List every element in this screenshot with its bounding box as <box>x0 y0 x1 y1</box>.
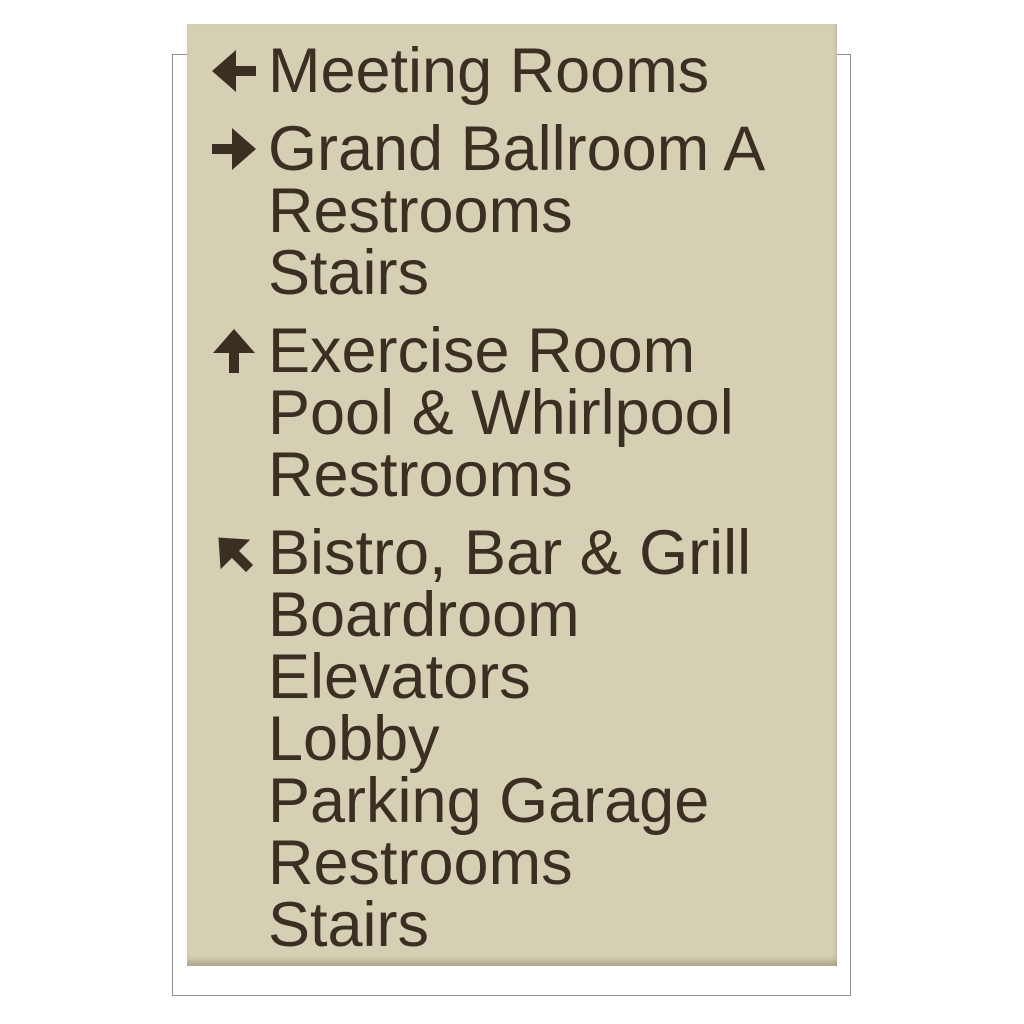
destination-label: Restrooms <box>268 832 823 894</box>
arrow-right-icon <box>210 118 268 180</box>
destination-label: Bistro, Bar & Grill <box>268 522 823 584</box>
destination-label: Boardroom <box>268 584 823 646</box>
arrow-left-icon <box>210 40 268 102</box>
destination-label: Meeting Rooms <box>268 40 823 102</box>
direction-group-up: Exercise RoomPool & WhirlpoolRestrooms <box>210 320 823 506</box>
destination-list: Meeting Rooms <box>268 40 823 102</box>
destination-list: Exercise RoomPool & WhirlpoolRestrooms <box>268 320 823 506</box>
direction-group-right: Grand Ballroom ARestroomsStairs <box>210 118 823 304</box>
direction-group-up-left: Bistro, Bar & GrillBoardroomElevatorsLob… <box>210 522 823 956</box>
arrow-up-icon <box>210 320 268 382</box>
destination-label: Pool & Whirlpool <box>268 382 823 444</box>
destination-label: Restrooms <box>268 444 823 506</box>
destination-list: Grand Ballroom ARestroomsStairs <box>268 118 823 304</box>
wayfinding-sign-image: Meeting RoomsGrand Ballroom ARestroomsSt… <box>0 0 1024 1024</box>
destination-label: Restrooms <box>268 180 823 242</box>
destination-label: Lobby <box>268 708 823 770</box>
destination-list: Bistro, Bar & GrillBoardroomElevatorsLob… <box>268 522 823 956</box>
destination-label: Parking Garage <box>268 770 823 832</box>
direction-group-left: Meeting Rooms <box>210 40 823 102</box>
destination-label: Grand Ballroom A <box>268 118 823 180</box>
arrow-up-left-icon <box>210 522 268 584</box>
sign-panel: Meeting RoomsGrand Ballroom ARestroomsSt… <box>187 24 837 966</box>
destination-label: Elevators <box>268 646 823 708</box>
destination-label: Stairs <box>268 894 823 956</box>
destination-label: Stairs <box>268 242 823 304</box>
destination-label: Exercise Room <box>268 320 823 382</box>
